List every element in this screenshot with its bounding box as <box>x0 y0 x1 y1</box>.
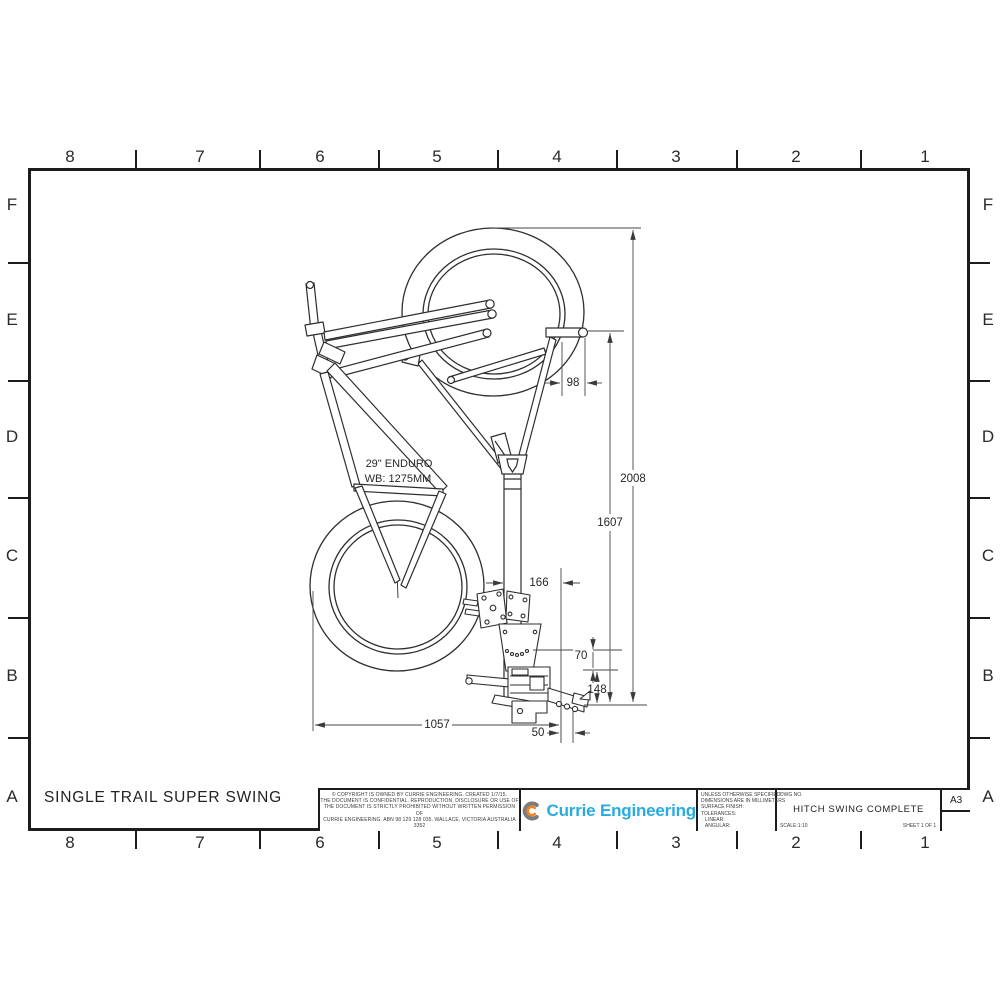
cad-view: 2008 1607 98 166 70 148 1057 50 29" ENDU… <box>0 0 1000 1000</box>
rear-wheel <box>310 501 484 671</box>
tolerance-notes-cell: UNLESS OTHERWISE SPECIFIED:DIMENSIONS AR… <box>698 790 777 831</box>
copyright-line: THE DOCUMENT IS STRICTLY PROHIBITED WITH… <box>320 804 519 817</box>
title-block: © COPYRIGHT IS OWNED BY CURRIE ENGINEERI… <box>318 788 970 831</box>
note-line: ANGULAR: <box>701 823 775 829</box>
hitch-clamp <box>466 667 550 723</box>
dim-post-to-hitch: 166 <box>529 577 548 589</box>
dwg-no-label: DWG NO. <box>780 792 803 798</box>
logo-text: Currie Engineering <box>547 801 696 821</box>
copyright-line: CURRIE ENGINEERING. ABN 98 129 128 035. … <box>320 817 519 830</box>
currie-logo-icon <box>521 798 542 824</box>
dim-handlebar-height: 1607 <box>597 517 623 529</box>
dim-handlebar-offset: 98 <box>567 377 580 389</box>
drawing-title: HITCH SWING COMPLETE <box>777 804 940 815</box>
bike-label-line2: WB: 1275MM <box>365 473 432 485</box>
dim-overall-height: 2008 <box>620 473 646 485</box>
drawing-sheet: 8 7 6 5 4 3 2 1 8 7 6 5 4 3 2 1 F E D C … <box>0 0 1000 1000</box>
copyright-cell: © COPYRIGHT IS OWNED BY CURRIE ENGINEERI… <box>320 790 521 831</box>
dim-hitch-drop: 148 <box>587 684 606 696</box>
bike-label-line1: 29" ENDURO <box>366 458 433 470</box>
sheet-label: SHEET 1 OF 1 <box>903 823 936 829</box>
dim-bike-reach: 1057 <box>424 719 450 731</box>
logo-cell: Currie Engineering <box>521 790 698 831</box>
drawing-number-cell: DWG NO. HITCH SWING COMPLETE SCALE:1:10 … <box>777 790 942 831</box>
hitch-tongue <box>548 688 590 712</box>
revision-box <box>942 812 970 831</box>
product-title: SINGLE TRAIL SUPER SWING <box>44 789 282 807</box>
dim-pin-offset: 50 <box>532 727 545 739</box>
bike-frame <box>312 355 447 588</box>
paper-size-cell: A3 <box>942 790 970 831</box>
swing-plate <box>499 624 541 671</box>
scale-label: SCALE:1:10 <box>780 823 808 829</box>
paper-size: A3 <box>942 790 970 812</box>
dim-plate-drop: 70 <box>575 650 588 662</box>
